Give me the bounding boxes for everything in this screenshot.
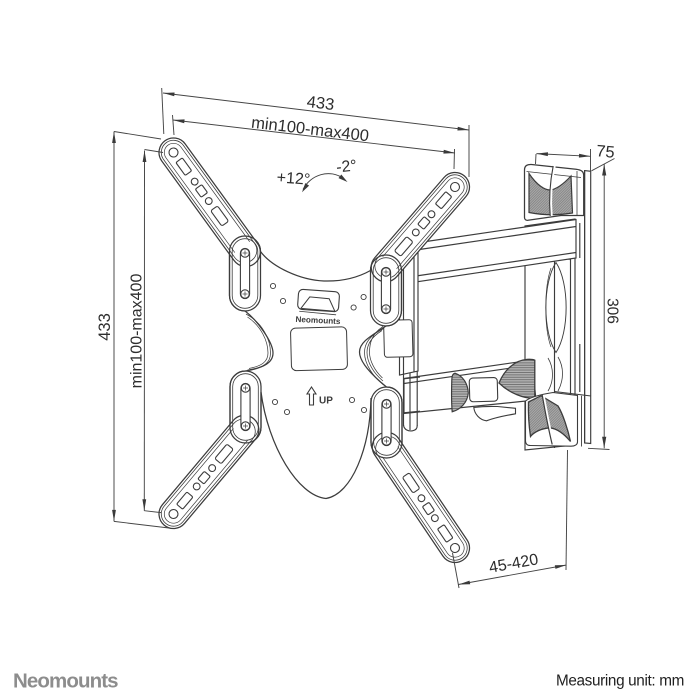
svg-text:45-420: 45-420 xyxy=(488,551,540,577)
svg-text:433: 433 xyxy=(96,313,114,341)
svg-text:min100-max400: min100-max400 xyxy=(250,114,370,146)
svg-text:Neomounts: Neomounts xyxy=(13,670,118,693)
svg-text:-2°: -2° xyxy=(335,157,357,176)
svg-text:+12°: +12° xyxy=(276,169,311,188)
svg-text:433: 433 xyxy=(306,93,335,114)
svg-text:UP: UP xyxy=(319,396,333,407)
svg-text:75: 75 xyxy=(595,142,615,162)
svg-text:min100-max400: min100-max400 xyxy=(129,274,146,389)
svg-text:Measuring unit: mm: Measuring unit: mm xyxy=(556,673,684,690)
svg-text:306: 306 xyxy=(604,298,621,324)
